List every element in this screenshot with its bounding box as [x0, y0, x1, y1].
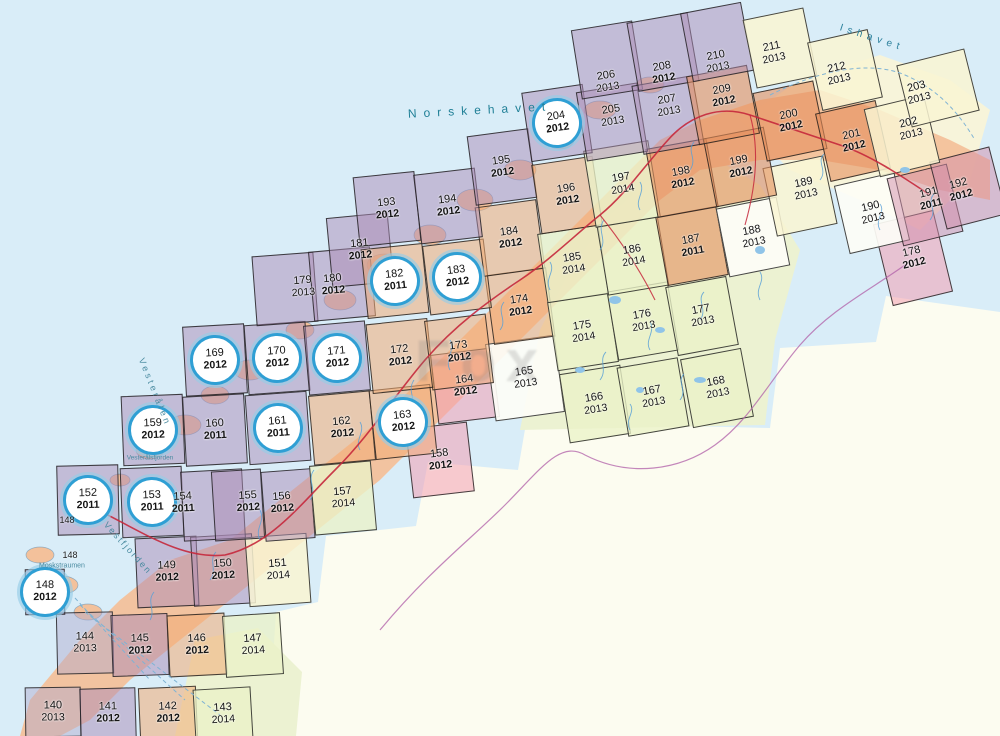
map-index-stage: 1402013141201214220121432014144201314520… [0, 0, 1000, 736]
map-sheet-203[interactable] [896, 48, 979, 127]
map-sheet-184[interactable] [475, 199, 546, 277]
sheet-year: 2012 [545, 122, 570, 137]
sheet-year: 2011 [384, 280, 408, 294]
map-sheet-162[interactable] [308, 390, 376, 465]
map-sheet-143[interactable] [193, 686, 254, 736]
sheet-year: 2011 [77, 500, 100, 512]
map-sheet-165[interactable] [485, 335, 565, 422]
map-sheet-147[interactable] [222, 612, 284, 678]
sheet-year: 2012 [141, 430, 165, 442]
sheet-year: 2012 [391, 421, 415, 435]
map-sheet-160[interactable] [182, 393, 248, 466]
map-sheet-173[interactable] [424, 314, 494, 391]
map-sheet-140[interactable] [25, 687, 82, 736]
map-sheet-157[interactable] [309, 460, 377, 535]
map-sheet-156[interactable] [260, 468, 315, 542]
map-sheet-144[interactable] [56, 611, 114, 674]
map-sheet-167[interactable] [616, 357, 689, 437]
map-sheet-146[interactable] [166, 613, 227, 678]
map-sheet-151[interactable] [245, 533, 312, 607]
sheet-year: 2012 [325, 357, 349, 370]
sheet-year: 2012 [33, 592, 56, 604]
sheet-year: 2011 [141, 502, 164, 514]
map-sheet-177[interactable] [665, 276, 739, 356]
map-sheet-195[interactable] [467, 128, 538, 206]
map-sheet-211[interactable] [743, 7, 818, 88]
map-sheet-142[interactable] [138, 686, 198, 736]
sheet-grid [0, 0, 1000, 736]
sheet-year: 2012 [265, 357, 289, 370]
map-sheet-145[interactable] [110, 613, 169, 677]
map-sheet-155[interactable] [211, 469, 265, 542]
map-sheet-141[interactable] [79, 687, 136, 736]
sheet-year: 2012 [445, 276, 470, 290]
map-sheet-193[interactable] [353, 171, 422, 247]
map-sheet-210[interactable] [680, 2, 754, 82]
map-sheet-168[interactable] [680, 348, 754, 428]
map-sheet-212[interactable] [807, 29, 883, 111]
sheet-year: 2012 [203, 360, 227, 373]
sheet-year: 2011 [267, 427, 291, 440]
